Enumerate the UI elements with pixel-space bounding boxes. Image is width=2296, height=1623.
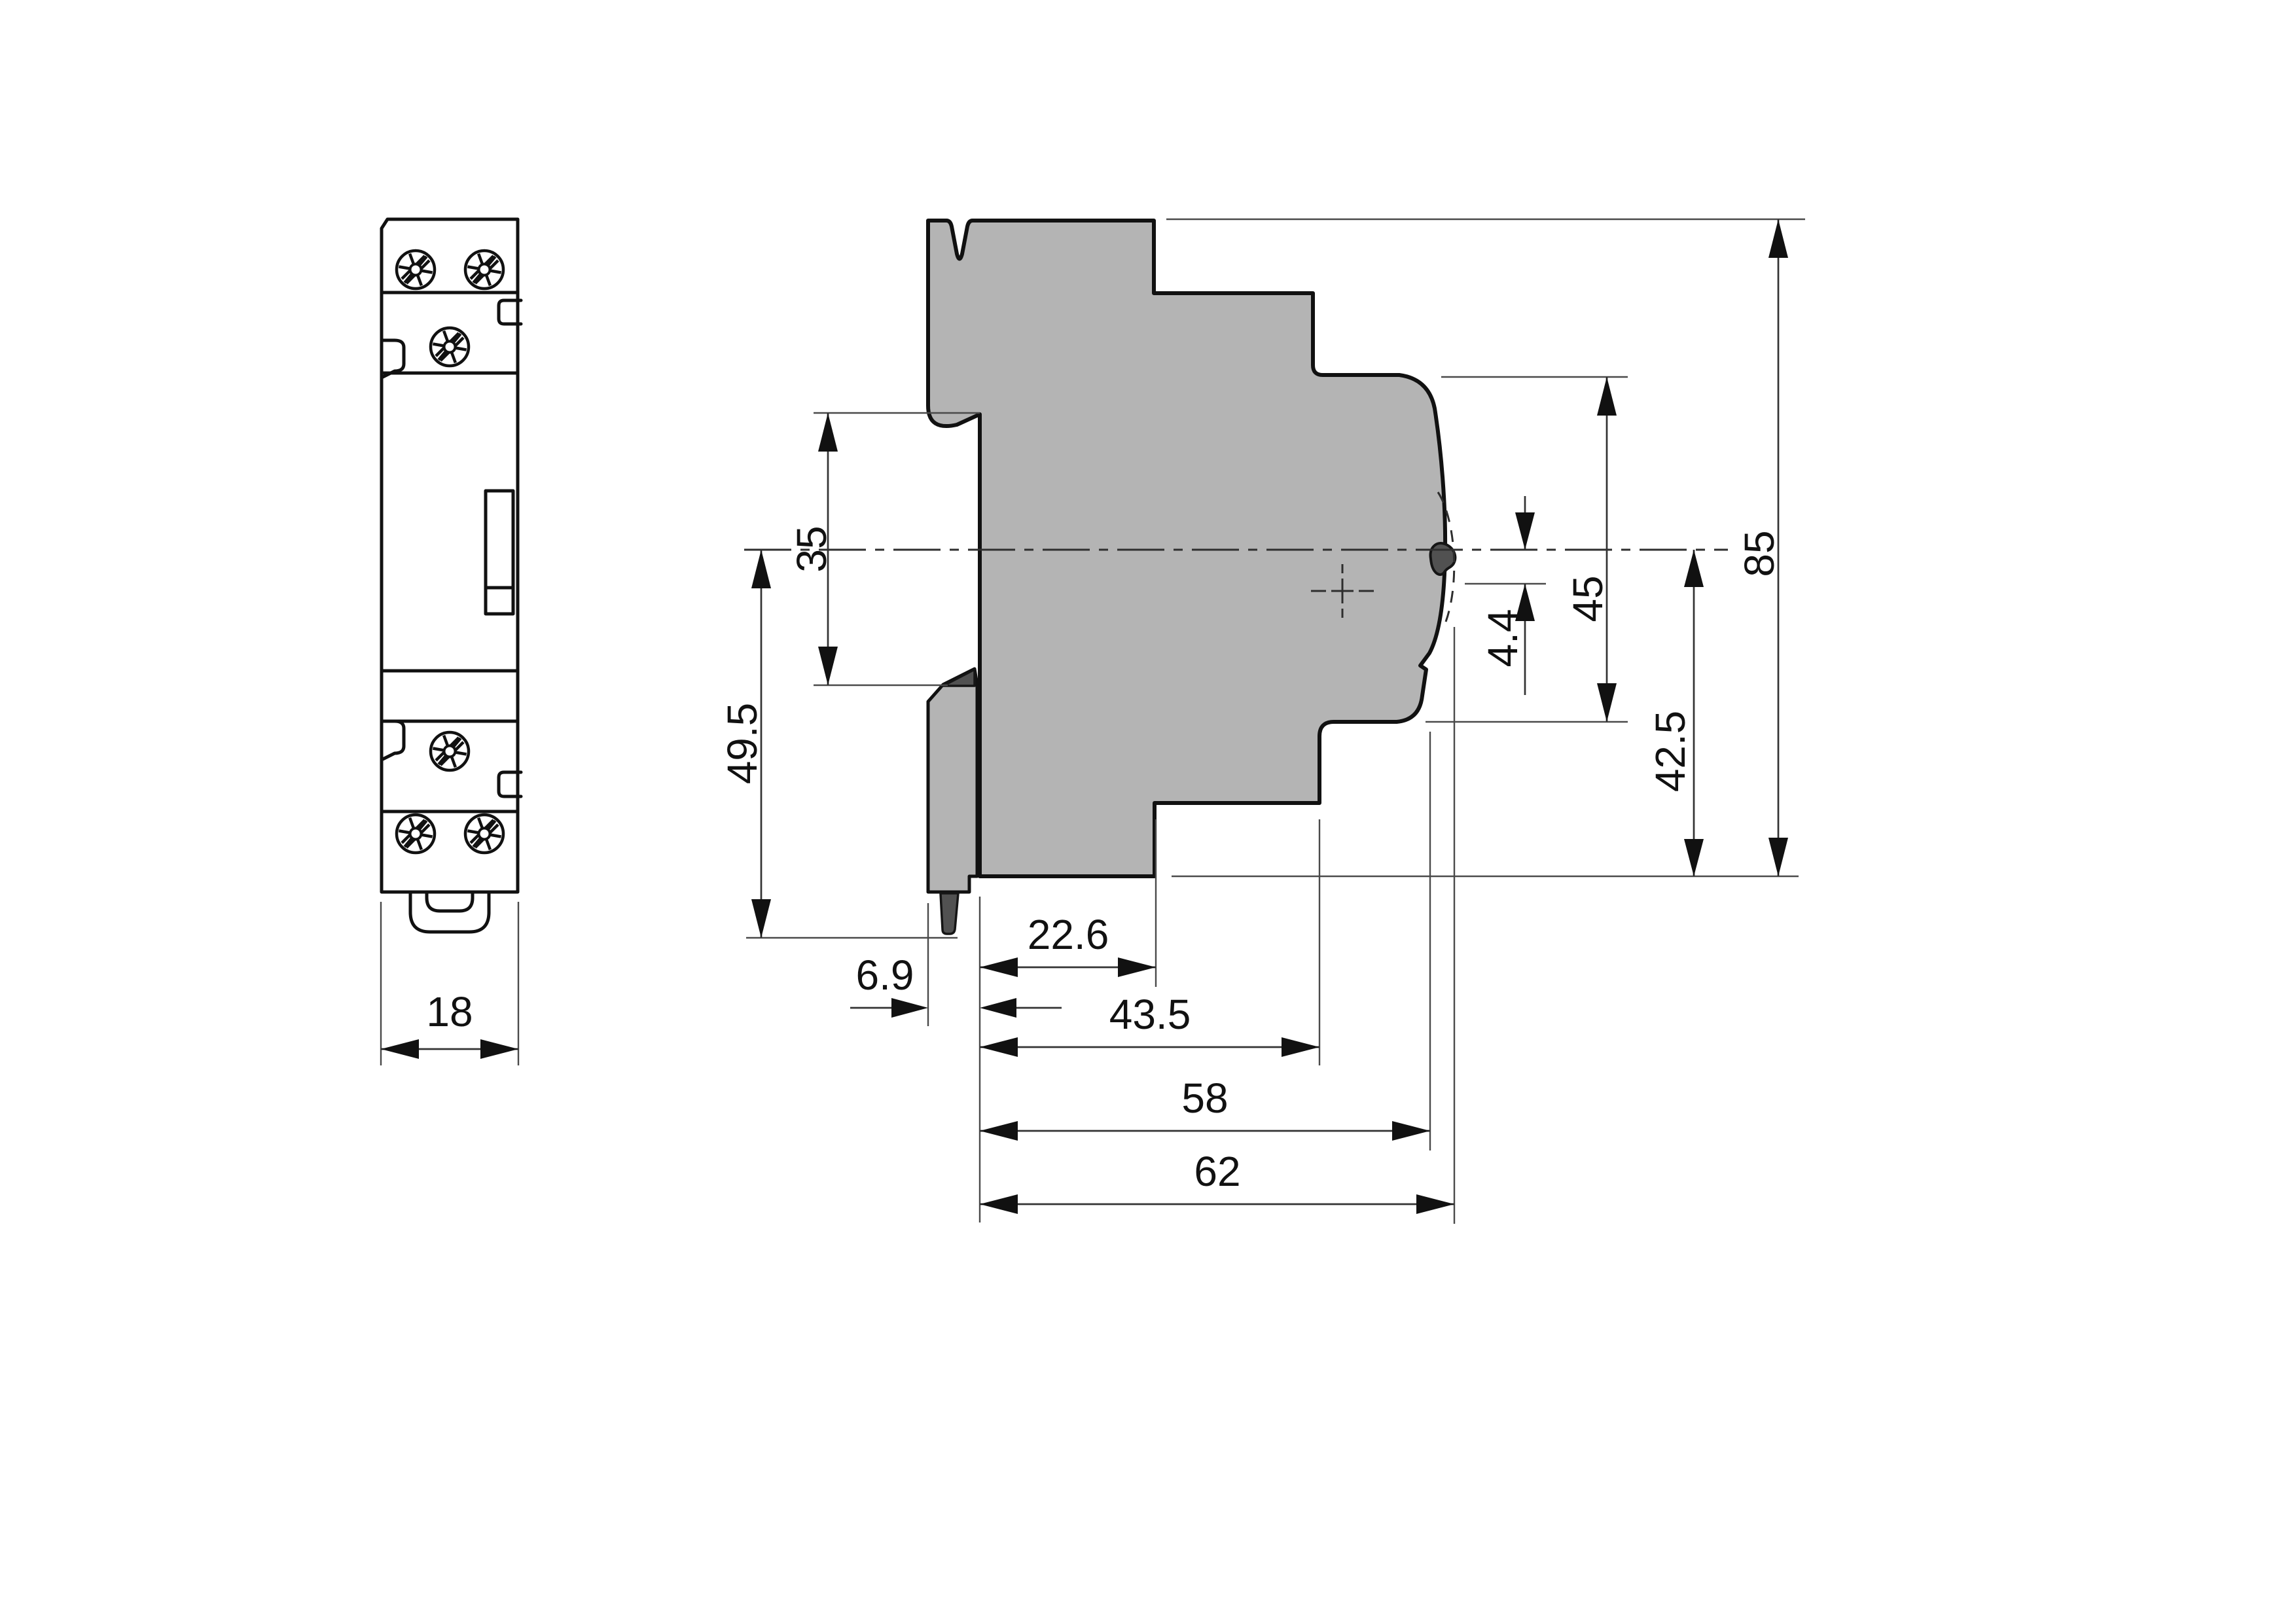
dim-label: 58 bbox=[1181, 1075, 1228, 1122]
dim-arrow bbox=[891, 998, 928, 1018]
dim-label: 43.5 bbox=[1109, 991, 1191, 1038]
dim-arrow bbox=[980, 1194, 1018, 1214]
dim-label: 22.6 bbox=[1028, 911, 1109, 958]
dim-arrow bbox=[980, 957, 1018, 977]
dim-arrow bbox=[1392, 1121, 1430, 1141]
dim-arrow bbox=[480, 1039, 518, 1059]
dim-arrow bbox=[1118, 957, 1156, 977]
dim-arrow bbox=[818, 647, 838, 685]
dim-arrow bbox=[751, 899, 771, 938]
dim-arrow bbox=[1768, 838, 1788, 876]
dim-arrow bbox=[818, 413, 838, 452]
screw-icon bbox=[397, 251, 435, 289]
side-body-profile bbox=[928, 221, 1445, 876]
screw-icon bbox=[397, 815, 435, 853]
dim-arrow bbox=[1684, 839, 1704, 876]
dim-arrow bbox=[1597, 683, 1617, 722]
dim-width-18: 18 bbox=[381, 902, 518, 1065]
dim-label: 4.4 bbox=[1479, 609, 1526, 668]
clip-tooth bbox=[943, 669, 975, 686]
dim-label: 35 bbox=[788, 526, 835, 572]
dim-label: 85 bbox=[1736, 530, 1783, 577]
dim-arrow bbox=[1416, 1194, 1454, 1214]
dim-label: 45 bbox=[1564, 575, 1611, 622]
dim-label: 62 bbox=[1194, 1148, 1240, 1195]
screw-icon bbox=[431, 328, 469, 366]
dim-arrow bbox=[980, 1121, 1018, 1141]
dim-arrow bbox=[1684, 550, 1704, 587]
din-clip-slider bbox=[928, 669, 977, 892]
dim-label: 42.5 bbox=[1647, 711, 1694, 793]
toggle-knob bbox=[1431, 543, 1456, 575]
dim-toggle-offset-4-4: 4.4 bbox=[1465, 496, 1546, 695]
dim-arrow bbox=[1768, 219, 1788, 258]
dim-arrow bbox=[1282, 1037, 1319, 1057]
dim-center-to-foot-49-5: 49.5 bbox=[719, 550, 958, 938]
dim-arrow bbox=[751, 550, 771, 588]
technical-drawing: 18 35 bbox=[0, 0, 2296, 1623]
dim-arrow bbox=[980, 998, 1016, 1018]
dim-label: 6.9 bbox=[856, 952, 914, 999]
toggle-window bbox=[486, 491, 513, 614]
screw-icon bbox=[465, 251, 503, 289]
screw-icon bbox=[431, 732, 469, 770]
drawing-canvas: 18 35 bbox=[0, 0, 2296, 1623]
din-clip-tab-inner bbox=[427, 892, 473, 911]
side-notch bbox=[382, 721, 404, 760]
clip-release-foot bbox=[941, 893, 958, 934]
screw-icon bbox=[465, 815, 503, 853]
dim-label: 18 bbox=[426, 988, 473, 1035]
dim-label: 49.5 bbox=[719, 703, 766, 785]
dim-arrow bbox=[381, 1039, 419, 1059]
dim-arrow bbox=[1597, 377, 1617, 416]
front-view: 18 bbox=[381, 219, 521, 1065]
dim-arrow bbox=[1515, 512, 1535, 550]
dim-arrow bbox=[980, 1037, 1018, 1057]
